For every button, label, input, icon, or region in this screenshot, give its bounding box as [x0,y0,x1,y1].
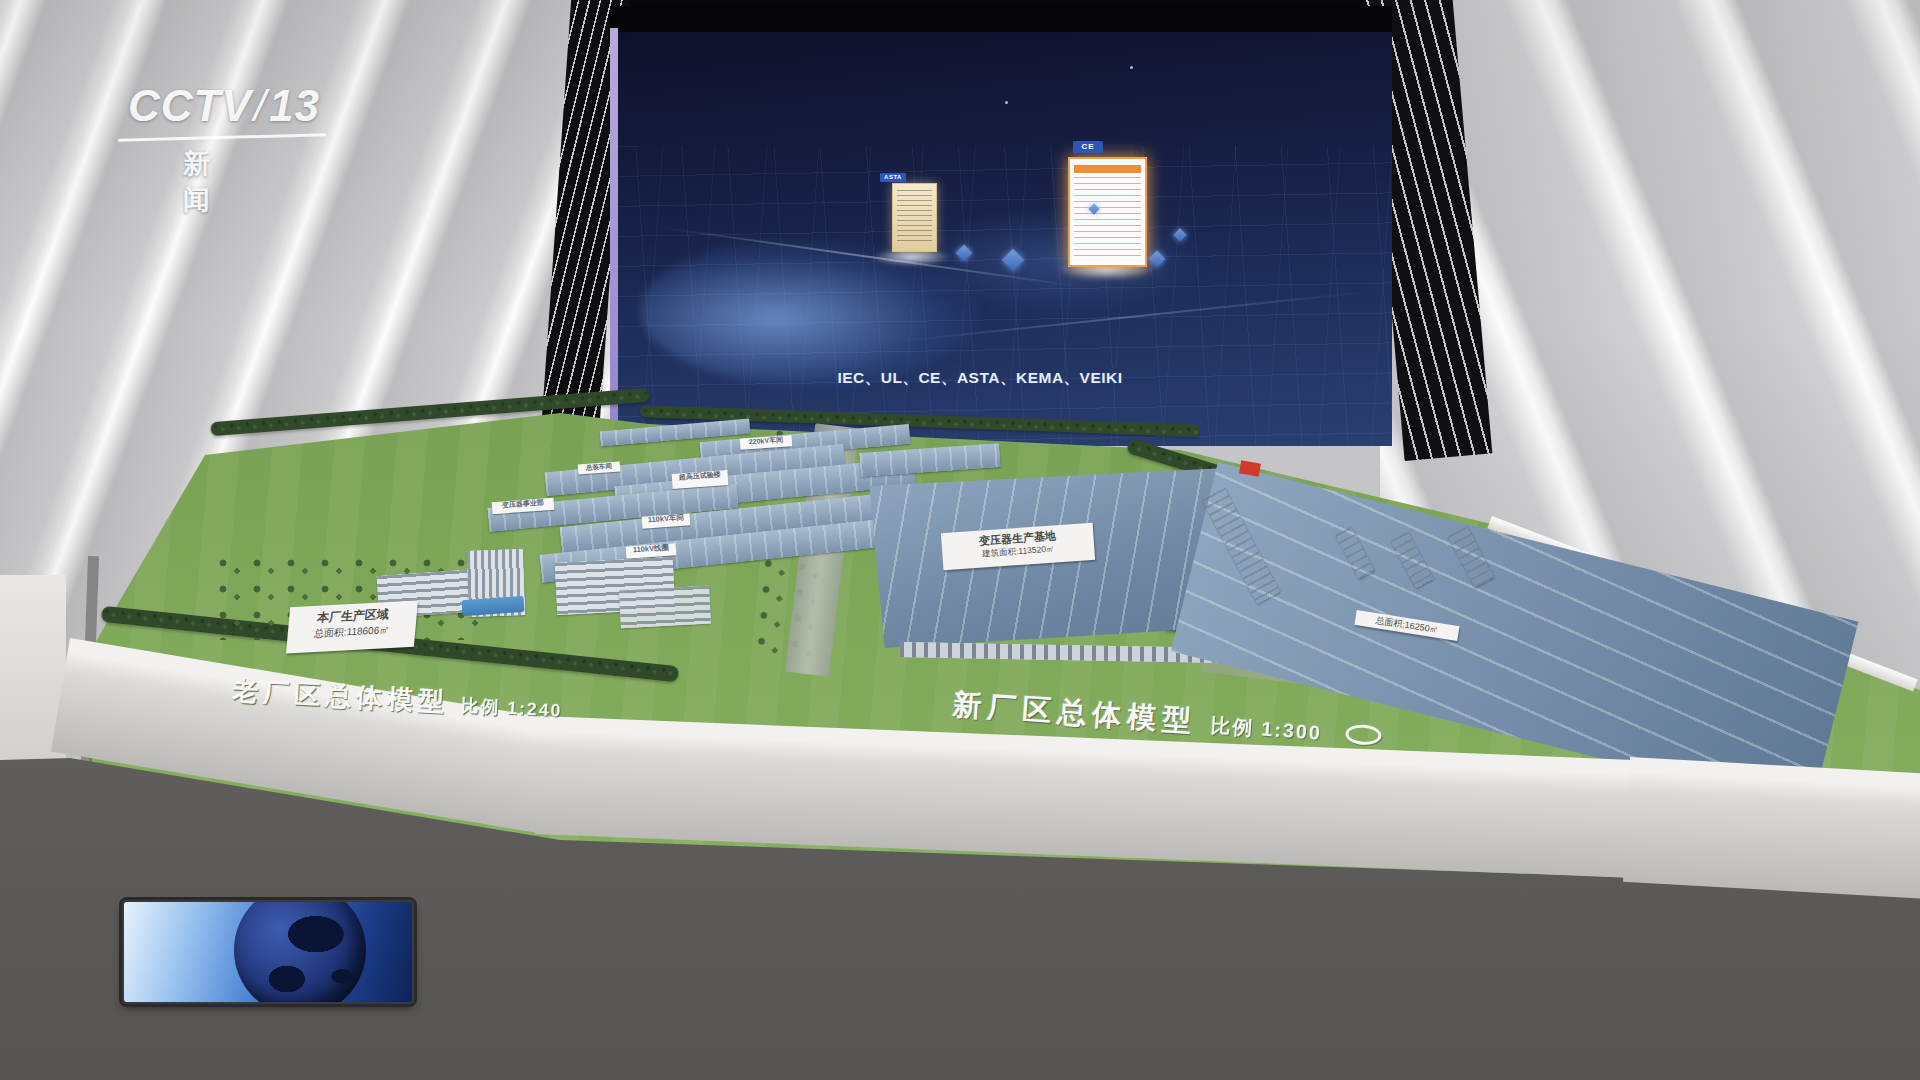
cctv-channel-number: 13 [269,81,320,130]
model-oval-logo [1345,724,1382,746]
cctv13-watermark: CCTV/13 新 闻 [128,84,320,128]
left-wall-base [0,575,66,790]
old-zone-scale-text: 比例 1:240 [460,695,562,720]
cctv-logo-row: CCTV/13 [128,84,320,128]
new-zone-scale-text: 比例 1:300 [1210,714,1323,744]
cctv-subtitle: 新 闻 [183,146,320,218]
exhibition-hall-photo: ASTA CE IEC、UL、CE、ASTA、KEMA、VEIKI [0,0,1920,1080]
workshop-building [619,586,711,629]
cctv-logo-text: CCTV [128,81,252,130]
news-bumper-graphic [122,900,414,1004]
platform-front-band [1623,757,1920,900]
cctv-logo-slash: / [252,81,269,130]
old-zone-area-sign: 本厂生产区域 总面积:118606㎡ [286,601,418,654]
